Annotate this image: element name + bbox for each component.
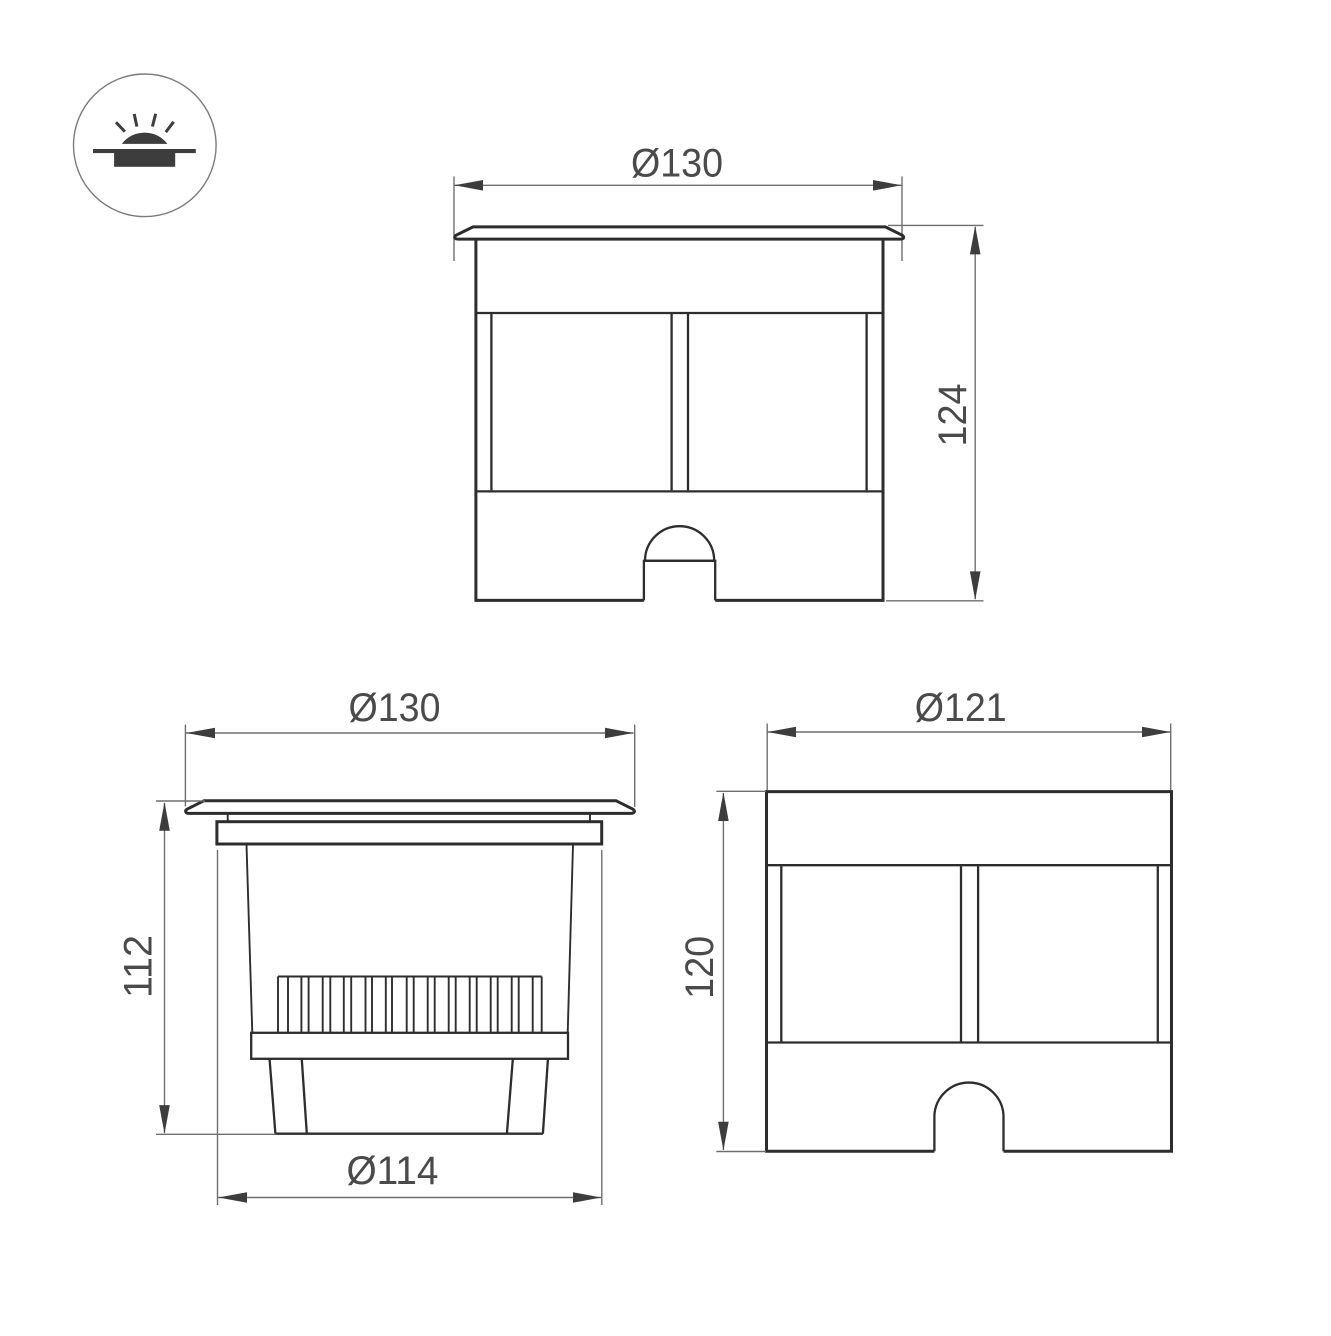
svg-text:Ø121: Ø121 — [915, 686, 1007, 730]
svg-text:112: 112 — [117, 935, 161, 998]
svg-text:Ø114: Ø114 — [347, 1149, 439, 1193]
svg-text:120: 120 — [678, 936, 722, 999]
svg-text:Ø130: Ø130 — [349, 686, 441, 730]
svg-text:Ø130: Ø130 — [631, 142, 723, 186]
svg-text:124: 124 — [931, 384, 975, 447]
